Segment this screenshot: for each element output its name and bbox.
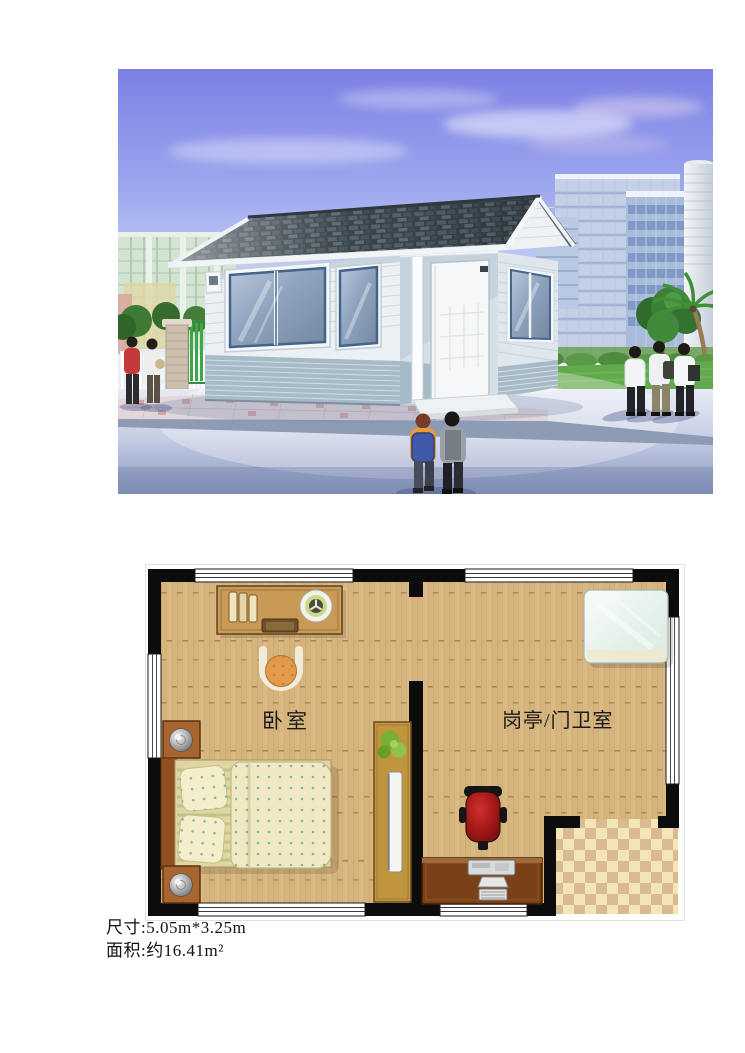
guard-house bbox=[168, 196, 576, 420]
dresser-desk bbox=[217, 586, 346, 638]
door-sign bbox=[480, 266, 488, 272]
floor-plan: 卧室 岗亭/门卫室 bbox=[145, 564, 685, 921]
house-right-wall bbox=[498, 252, 558, 399]
caption-dimensions: 尺寸:5.05m*3.25m bbox=[106, 916, 246, 939]
shoulder-bag bbox=[663, 361, 675, 379]
front-window-small bbox=[336, 263, 381, 350]
floor-plan-svg: 卧室 岗亭/门卫室 bbox=[145, 564, 685, 921]
computer-desk bbox=[422, 858, 542, 904]
wardrobe-with-plant bbox=[374, 722, 411, 902]
house-front-wall bbox=[205, 255, 400, 405]
duvet bbox=[231, 762, 331, 868]
sleeping-pad bbox=[584, 590, 673, 668]
room-label-guard-room: 岗亭/门卫室 bbox=[502, 709, 614, 732]
caption-block: 尺寸:5.05m*3.25m 面积:约16.41m² bbox=[106, 916, 246, 962]
nightstand-bottom bbox=[163, 866, 200, 903]
entry-door bbox=[431, 260, 489, 400]
partition-wall-top bbox=[409, 569, 423, 597]
porch-post bbox=[412, 252, 423, 403]
double-bed bbox=[161, 758, 339, 874]
exterior-rendering-svg bbox=[118, 69, 713, 494]
front-window-large bbox=[225, 262, 330, 352]
design-sheet-page: 卧室 岗亭/门卫室 尺寸:5.05m*3.25m 面积:约16.41m² bbox=[0, 0, 745, 1053]
caption-area: 面积:约16.41m² bbox=[106, 939, 246, 962]
exterior-rendering bbox=[118, 69, 713, 494]
pillow bbox=[177, 814, 226, 864]
nightstand-top bbox=[163, 721, 200, 758]
backpack bbox=[412, 433, 434, 462]
shoulder-bag bbox=[688, 365, 700, 381]
room-label-bedroom: 卧室 bbox=[262, 709, 310, 733]
pillow bbox=[179, 765, 228, 812]
entry-tile-floor bbox=[556, 819, 678, 914]
